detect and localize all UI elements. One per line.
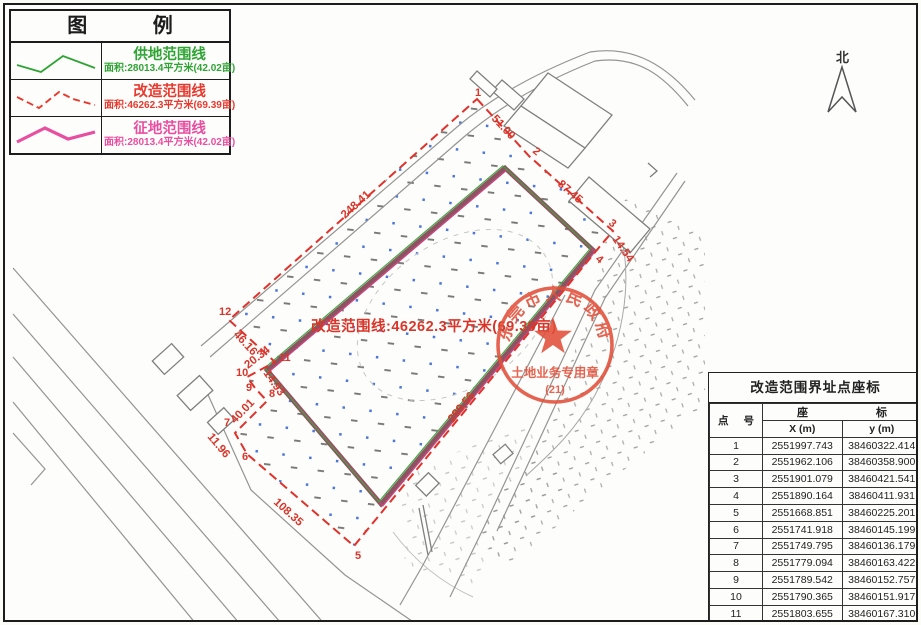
table-title: 改造范围界址点座标 [709, 373, 918, 403]
legend-item-name: 改造范围线 [133, 84, 206, 100]
supply-line-sample [11, 43, 102, 79]
coord-y: 38460163.422 [842, 555, 918, 572]
table-row: 9 2551789.542 38460152.757 [710, 572, 919, 589]
supply-line-icon [11, 44, 101, 78]
legend-item-area: 面积:28013.4平方米(42.02亩) [104, 63, 235, 75]
point-number: 3 [710, 471, 763, 488]
coord-x: 2551789.542 [763, 572, 843, 589]
coord-x: 2551803.655 [763, 605, 843, 622]
coord-x: 2551790.365 [763, 588, 843, 605]
table-row: 4 2551890.164 38460411.931 [710, 488, 919, 505]
table-row: 2 2551962.106 38460358.900 [710, 454, 919, 471]
coord-y: 38460421.541 [842, 471, 918, 488]
table-row: 7 2551749.795 38460136.179 [710, 538, 919, 555]
legend-row-acquisition: 征地范围线 面积:28013.4平方米(42.02亩) [11, 117, 229, 153]
coord-y: 38460152.757 [842, 572, 918, 589]
coord-y: 38460322.414 [842, 437, 918, 454]
coord-x: 2551997.743 [763, 437, 843, 454]
point-number: 5 [710, 504, 763, 521]
coord-x: 2551779.094 [763, 555, 843, 572]
point-label: 6 [242, 451, 248, 463]
page-frame: 248.41 51.00 87.45 14.54 289.56 108.35 1… [3, 3, 918, 622]
point-number: 11 [710, 605, 763, 622]
point-label: 2 [530, 145, 542, 158]
coord-y: 38460225.201 [842, 504, 918, 521]
stamp-line2: (21) [545, 384, 565, 396]
col-x-header: X (m) [763, 421, 843, 438]
legend-box: 图 例 供地范围线 面积:28013.4平方米(42.02亩) 改造范围线 面积… [9, 9, 231, 155]
legend-item-name: 征地范围线 [133, 121, 206, 137]
coord-y: 38460151.917 [842, 588, 918, 605]
legend-title: 图 例 [11, 11, 229, 43]
point-number: 1 [710, 437, 763, 454]
building [207, 408, 234, 435]
acquisition-line-icon [11, 118, 101, 152]
table-header-row: 点 号 座 标 [710, 404, 919, 421]
table-row: 11 2551803.655 38460167.310 [710, 605, 919, 622]
legend-row-supply: 供地范围线 面积:28013.4平方米(42.02亩) [11, 43, 229, 80]
coord-y: 38460411.931 [842, 488, 918, 505]
legend-item-area: 面积:28013.4平方米(42.02亩) [104, 137, 235, 149]
point-number: 2 [710, 454, 763, 471]
point-label: 7 [224, 417, 230, 429]
coord-y: 38460358.900 [842, 454, 918, 471]
point-label: 1 [475, 87, 481, 99]
point-number: 10 [710, 588, 763, 605]
legend-item-area: 面积:46262.3平方米(69.39亩) [104, 100, 235, 112]
coord-y: 38460167.310 [842, 605, 918, 622]
legend-item-name: 供地范围线 [133, 47, 206, 63]
coord-x: 2551668.851 [763, 504, 843, 521]
point-number: 8 [710, 555, 763, 572]
building [177, 376, 213, 411]
table-row: 1 2551997.743 38460322.414 [710, 437, 919, 454]
coordinate-table: 改造范围界址点座标 点 号 座 标 X (m) y (m) 1 [708, 372, 918, 622]
north-arrow-icon [828, 67, 856, 112]
table-row: 8 2551779.094 38460163.422 [710, 555, 919, 572]
table-row: 6 2551741.918 38460145.199 [710, 521, 919, 538]
point-number: 9 [710, 572, 763, 589]
table-row: 5 2551668.851 38460225.201 [710, 504, 919, 521]
point-label: 12 [219, 306, 231, 318]
coord-y: 38460136.179 [842, 538, 918, 555]
segment-label: 11.96 [205, 431, 232, 460]
coord-x: 2551962.106 [763, 454, 843, 471]
col-y-header: y (m) [842, 421, 918, 438]
acquisition-line-sample [11, 117, 102, 153]
point-label: 8 [269, 388, 275, 400]
point-number: 4 [710, 488, 763, 505]
coord-x: 2551890.164 [763, 488, 843, 505]
renovation-line-icon [11, 81, 101, 115]
point-number: 6 [710, 521, 763, 538]
coord-header-left: 座 [797, 404, 808, 420]
legend-row-renovation: 改造范围线 面积:46262.3平方米(69.39亩) [11, 80, 229, 117]
coord-header-right: 标 [876, 404, 887, 420]
point-label: 10 [236, 367, 248, 379]
point-label: 9 [246, 382, 252, 394]
table-row: 3 2551901.079 38460421.541 [710, 471, 919, 488]
coord-x: 2551741.918 [763, 521, 843, 538]
table-row: 10 2551790.365 38460151.917 [710, 588, 919, 605]
coord-x: 2551901.079 [763, 471, 843, 488]
north-label: 北 [836, 50, 849, 65]
point-label: 5 [355, 550, 361, 562]
coord-y: 38460145.199 [842, 521, 918, 538]
building [152, 344, 183, 375]
point-number: 7 [710, 538, 763, 555]
col-point-header: 点 号 [710, 404, 763, 438]
point-label: 11 [279, 352, 291, 364]
col-coord-header: 座 标 [763, 404, 919, 421]
north-arrow: 北 [828, 50, 856, 112]
renovation-line-sample [11, 80, 102, 116]
coord-x: 2551749.795 [763, 538, 843, 555]
survey-map-page: 248.41 51.00 87.45 14.54 289.56 108.35 1… [0, 0, 921, 625]
stamp-line1: 土地业务专用章 [511, 365, 599, 380]
